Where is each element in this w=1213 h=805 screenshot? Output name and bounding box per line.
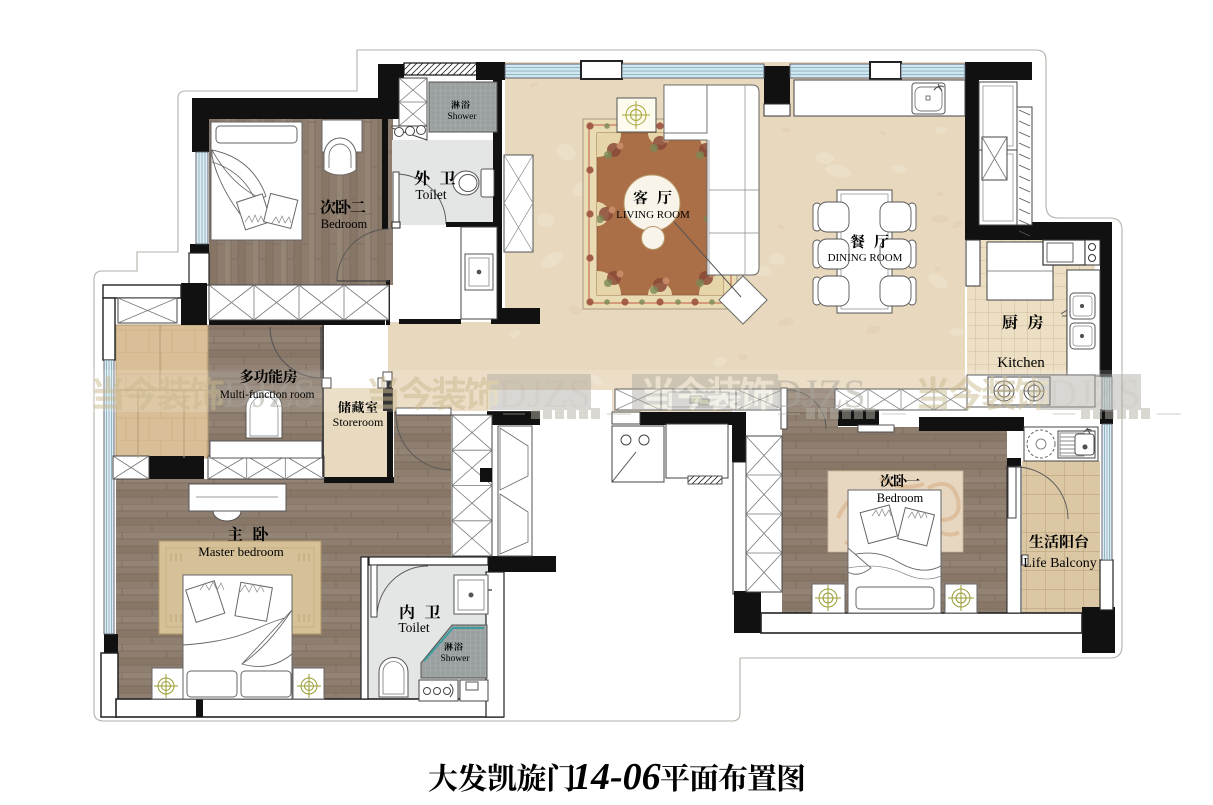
svg-text:Multi-function room: Multi-function room <box>220 389 315 401</box>
svg-text:14-06: 14-06 <box>572 756 661 798</box>
svg-text:DINING ROOM: DINING ROOM <box>828 252 903 264</box>
svg-text:Bedroom: Bedroom <box>877 491 924 505</box>
svg-text:Bedroom: Bedroom <box>321 217 368 231</box>
svg-text:Shower: Shower <box>447 112 477 122</box>
svg-text:Toilet: Toilet <box>415 187 447 202</box>
svg-text:Storeroom: Storeroom <box>333 415 384 429</box>
svg-text:Kitchen: Kitchen <box>997 355 1045 371</box>
svg-text:Master bedroom: Master bedroom <box>198 544 284 559</box>
svg-text:Life Balcony: Life Balcony <box>1023 556 1096 571</box>
svg-text:Toilet: Toilet <box>398 620 430 635</box>
svg-text:LIVING ROOM: LIVING ROOM <box>616 209 690 221</box>
svg-text:Shower: Shower <box>440 654 470 664</box>
